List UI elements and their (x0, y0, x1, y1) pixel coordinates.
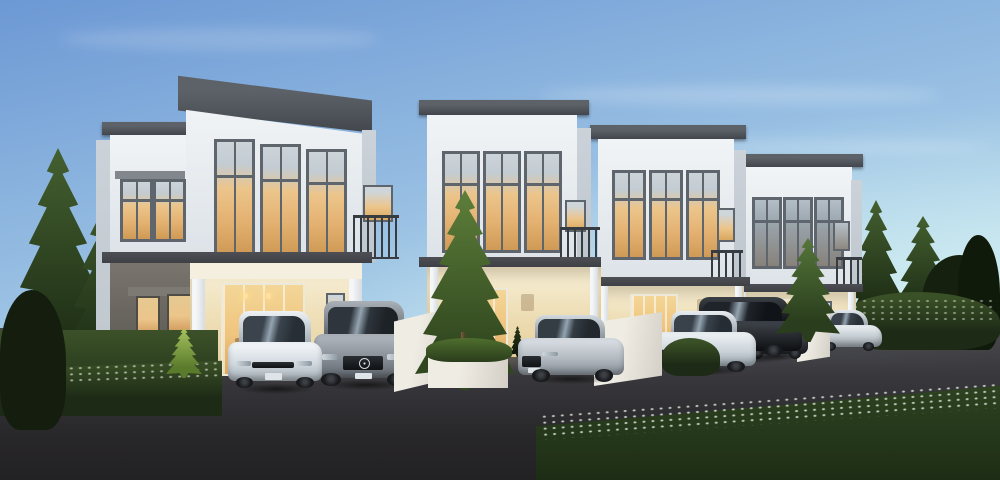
wing-window (120, 179, 153, 242)
license-plate (355, 373, 372, 379)
tall-window (612, 170, 646, 260)
dusk-townhouse-render (0, 0, 1000, 480)
pendant-lamp (266, 293, 271, 299)
wing-cornice (102, 122, 196, 135)
cloud-wisp (60, 28, 380, 50)
tall-window (260, 144, 301, 256)
roof-cornice (590, 125, 746, 139)
tall-window (524, 151, 562, 253)
car-wheel (595, 369, 613, 381)
cloud-wisp (540, 86, 940, 104)
window-header (115, 171, 185, 179)
car-white-hatchback (228, 311, 322, 389)
car-headlight (542, 352, 558, 357)
car-wheel (727, 361, 745, 372)
car-headlight (296, 361, 312, 366)
tall-window (686, 170, 720, 260)
car-grille (522, 356, 541, 367)
car-wheel (296, 377, 314, 388)
car-wheel (863, 342, 875, 351)
tall-window (483, 151, 521, 253)
planter-shrubs (426, 338, 512, 362)
tall-window (214, 139, 255, 256)
car-wheel (236, 377, 254, 388)
dark-bush (0, 290, 66, 430)
tall-window (306, 149, 347, 256)
tall-window (752, 197, 782, 269)
floor-band (102, 252, 372, 263)
tall-window (649, 170, 683, 260)
car-silver-sedan (518, 315, 624, 383)
car-grille (252, 362, 293, 367)
wing-window (153, 179, 186, 242)
car-wheel (764, 345, 783, 356)
front-shrub (662, 338, 720, 376)
balcony-window (717, 208, 735, 242)
three-pointed-star-emblem (359, 358, 370, 369)
roof-cornice (731, 154, 863, 167)
wall-art (521, 294, 534, 311)
car-headlight (236, 361, 252, 366)
car-wheel (532, 369, 550, 381)
balcony-window (833, 221, 850, 251)
license-plate (265, 373, 282, 379)
pendant-lamp (243, 293, 248, 299)
car-headlight (322, 354, 338, 360)
porch-beam (190, 263, 362, 279)
roof-cornice (419, 100, 589, 115)
floor-band (590, 277, 750, 286)
